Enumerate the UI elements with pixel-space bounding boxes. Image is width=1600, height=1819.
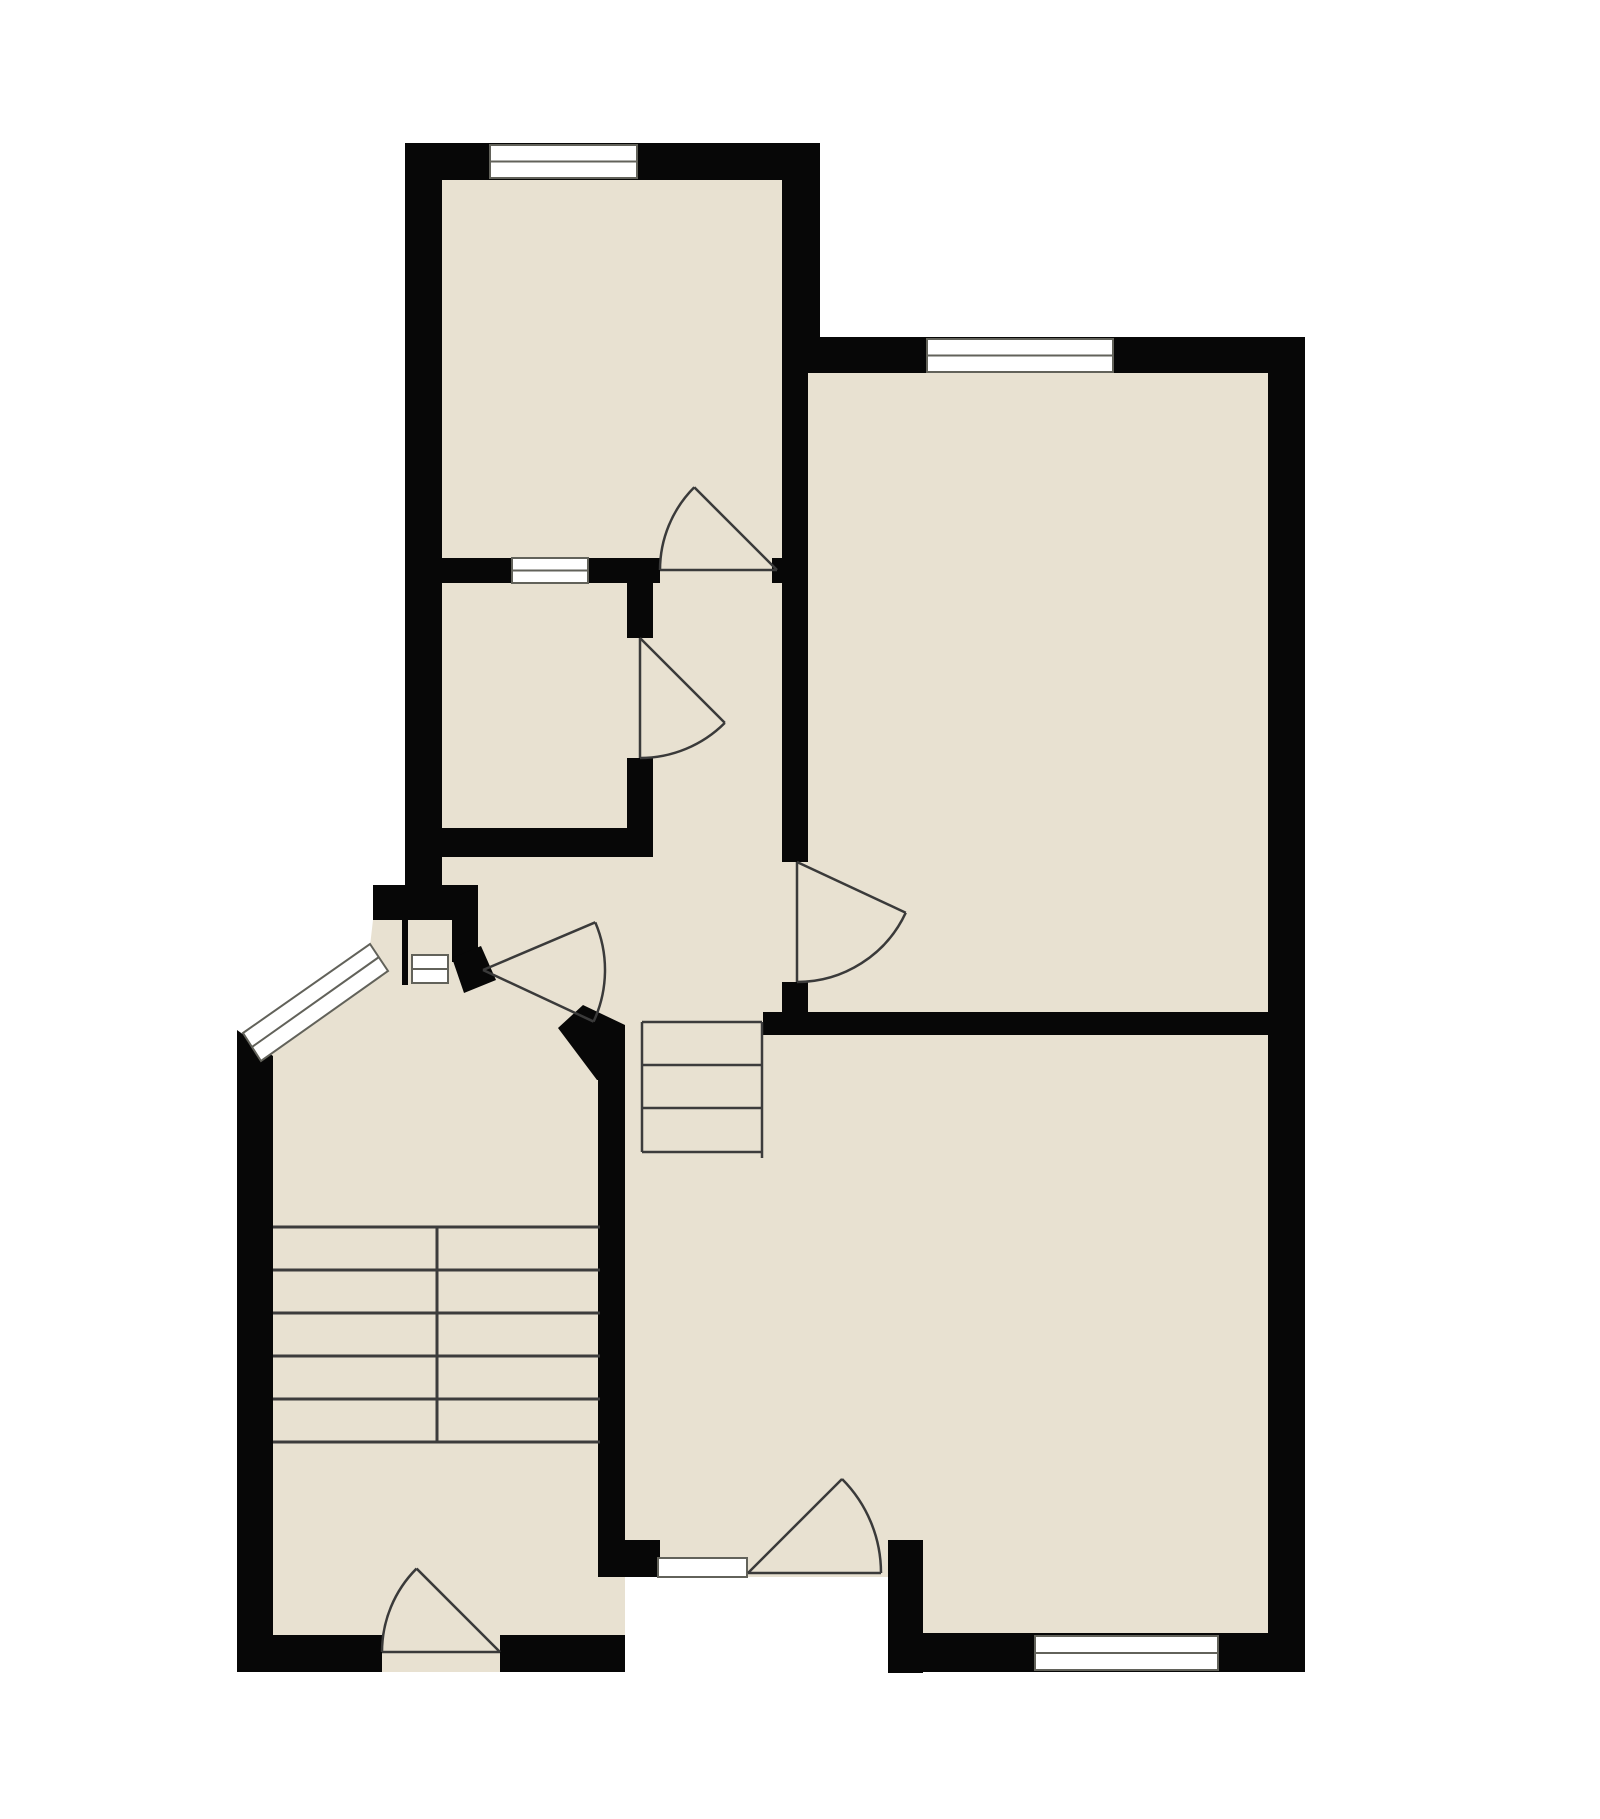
floor-plan-svg bbox=[0, 0, 1600, 1819]
wall bbox=[373, 885, 478, 920]
wall bbox=[237, 1030, 273, 1672]
window-right-room bbox=[927, 339, 1113, 372]
window-entry-sill bbox=[658, 1558, 747, 1577]
window-bay-niche bbox=[412, 955, 448, 983]
wall bbox=[402, 920, 408, 985]
wall bbox=[405, 143, 442, 885]
window-partition bbox=[512, 558, 588, 583]
wall bbox=[627, 583, 653, 638]
wall bbox=[782, 982, 808, 1012]
wall bbox=[442, 828, 653, 857]
window-frame bbox=[658, 1558, 747, 1577]
wall bbox=[888, 1540, 923, 1673]
wall bbox=[1268, 337, 1305, 1672]
wall bbox=[500, 1635, 625, 1672]
wall bbox=[625, 1540, 660, 1577]
floor-plan-page bbox=[0, 0, 1600, 1819]
wall bbox=[782, 338, 808, 862]
window-bottom-right bbox=[1035, 1636, 1218, 1670]
wall bbox=[763, 1012, 1268, 1035]
wall bbox=[782, 143, 820, 338]
window-top-left-room bbox=[490, 145, 637, 178]
wall bbox=[598, 1040, 625, 1577]
